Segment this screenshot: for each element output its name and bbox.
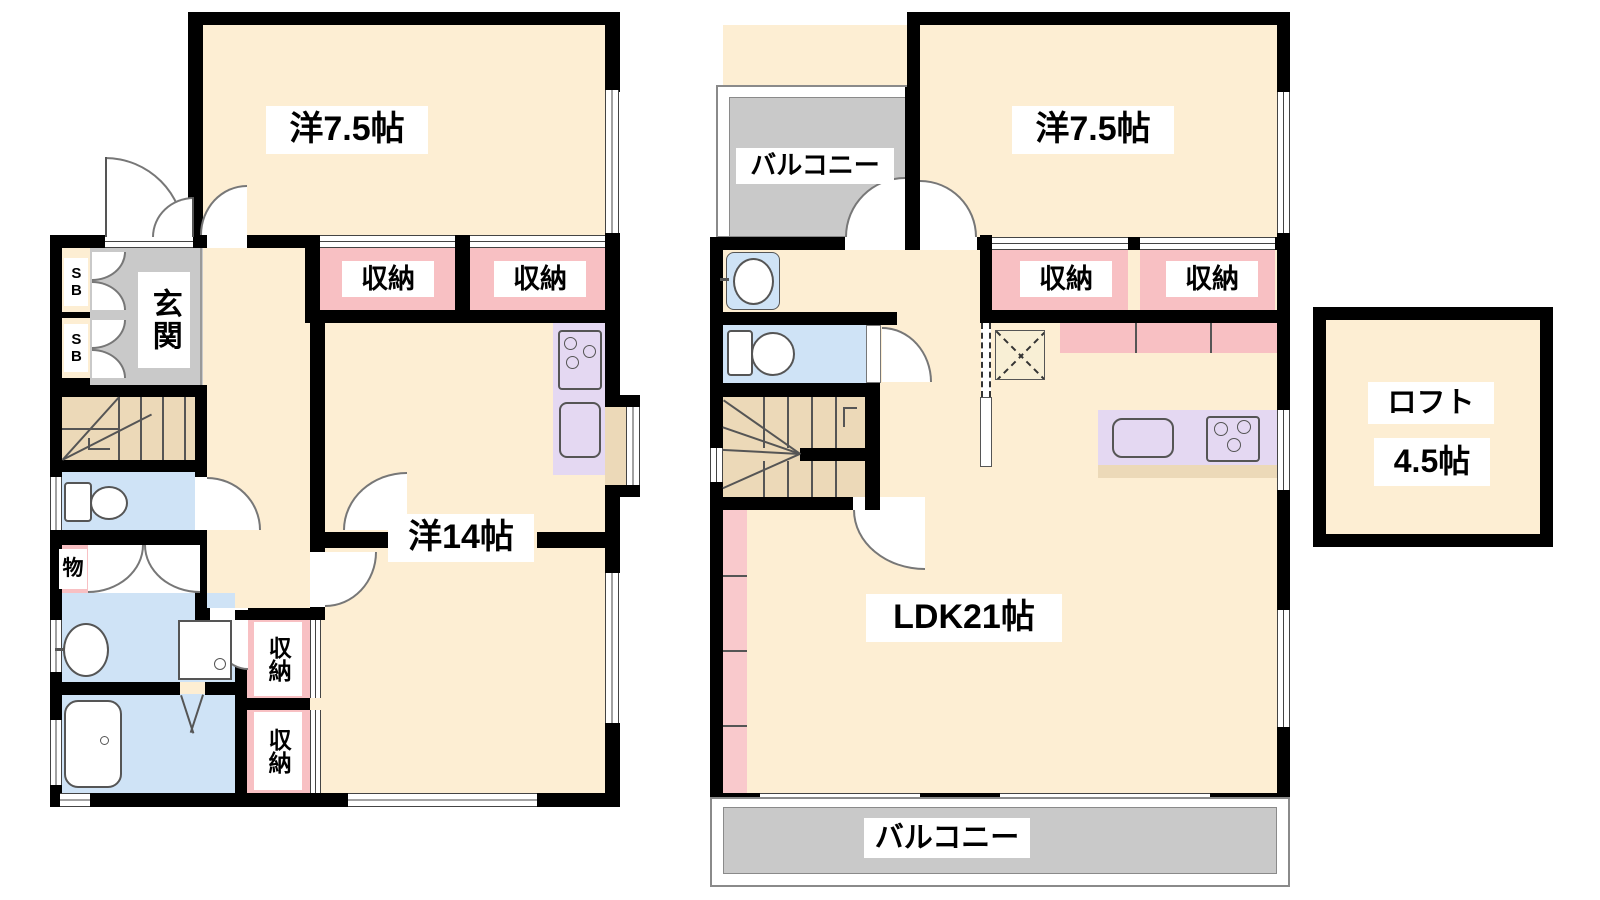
stair-tread <box>787 397 789 448</box>
wall <box>605 723 620 807</box>
window <box>710 448 723 482</box>
wall <box>188 12 620 25</box>
stair-tread <box>787 461 789 497</box>
storage-label: 収納 <box>254 622 302 696</box>
stair-tread <box>184 397 186 460</box>
wall <box>305 310 620 323</box>
wall <box>325 532 390 548</box>
wall <box>980 310 1290 323</box>
stove-burner <box>1214 422 1228 436</box>
window <box>626 407 640 485</box>
storage-label: 収納 <box>342 261 434 297</box>
wall <box>905 87 920 237</box>
washing-machine-1f <box>178 620 232 680</box>
storage-label: 収納 <box>1020 261 1112 297</box>
wall <box>605 497 620 573</box>
window <box>1277 410 1290 490</box>
floor-plan-canvas: 洋7.5帖 収納 収納 玄関 SB SB 物 洋14帖 収納 収納 <box>0 0 1600 900</box>
wall <box>50 793 60 807</box>
wall <box>247 698 310 710</box>
entrance-child-door-leaf <box>192 197 194 237</box>
wall <box>710 497 853 510</box>
window <box>1277 92 1290 233</box>
wall <box>195 608 210 620</box>
strip-divider <box>723 650 747 652</box>
kitchen-hatch-counter-2f <box>995 330 1045 380</box>
wall <box>50 460 207 472</box>
toilet-bowl-1f <box>90 486 128 520</box>
window <box>50 477 62 530</box>
wall <box>800 448 865 461</box>
sliding-door-storage-col-lower-1f <box>310 710 321 793</box>
closet-mono-label: 物 <box>59 549 87 589</box>
kitchen-cabinet-row-2f <box>1060 323 1277 353</box>
room-label-west-7-5-1f: 洋7.5帖 <box>266 106 428 154</box>
entrance-step-line <box>200 248 202 385</box>
stair-tread <box>811 461 813 497</box>
entrance-door-leaf <box>105 157 107 237</box>
toilet-door-leaf-2f <box>866 325 881 383</box>
washbasin-faucet-2f <box>720 278 729 281</box>
stair-tread <box>835 461 837 497</box>
wall <box>710 237 845 250</box>
wall <box>62 312 90 318</box>
toilet-tank-1f <box>64 482 92 522</box>
stair-rail-line <box>843 407 845 427</box>
wall <box>310 607 325 620</box>
wall <box>1277 250 1290 410</box>
ldk-label: LDK21帖 <box>866 594 1062 642</box>
storage-label: 収納 <box>494 261 586 297</box>
window <box>605 573 619 723</box>
kitchen-island-base-2f <box>1098 465 1278 478</box>
window <box>605 90 619 233</box>
window <box>1277 610 1290 727</box>
door-gap-balcony-2f <box>845 237 905 250</box>
bathtub-1f <box>64 700 122 788</box>
storage-label: 収納 <box>1166 261 1258 297</box>
kitchen-sink-2f <box>1112 418 1174 458</box>
wall <box>907 12 1290 25</box>
loft-label: ロフト <box>1368 382 1494 424</box>
kitchen-bay-1f <box>605 407 628 485</box>
wall <box>980 235 992 323</box>
strip-divider <box>723 575 747 577</box>
wall <box>62 530 207 545</box>
door-gap-ldk-2f <box>853 497 925 510</box>
wall <box>710 312 897 325</box>
balcony-top-label: バルコニー <box>736 148 894 184</box>
sliding-door-storage-right-2f <box>1140 237 1275 250</box>
stove-burner <box>1237 420 1251 434</box>
wall <box>62 378 90 388</box>
wall <box>1277 12 1290 92</box>
wall <box>710 237 723 448</box>
wall <box>537 532 605 548</box>
washbasin-1f <box>63 623 109 677</box>
stove-burner <box>1227 438 1241 452</box>
washbasin-bowl-2f <box>733 258 774 305</box>
wall <box>605 12 620 92</box>
wall <box>1275 237 1290 250</box>
wall <box>193 235 207 248</box>
entrance-label: 玄関 <box>138 272 190 368</box>
cabinet-divider <box>1135 323 1137 353</box>
window <box>348 793 537 807</box>
door-gap-room2-1f <box>310 552 325 607</box>
shoebox-label: SB <box>64 324 88 372</box>
ldk-west-closet-strip <box>723 508 747 802</box>
sliding-door-storage-col-upper-1f <box>310 620 321 698</box>
wall <box>865 397 880 510</box>
washbasin-faucet-1f <box>55 648 64 651</box>
stove-burner <box>566 356 579 369</box>
toilet-bowl-2f <box>751 332 795 376</box>
wall <box>247 610 310 620</box>
wall <box>310 323 325 552</box>
bathtub-drain-1f <box>100 736 109 745</box>
sliding-door-storage-left-2f <box>992 237 1128 250</box>
window <box>50 720 62 785</box>
balcony-bottom-label: バルコニー <box>864 818 1030 858</box>
wall <box>605 395 640 407</box>
door-gap-room1-1f <box>203 235 247 248</box>
stair-tread <box>763 461 765 497</box>
storage-label: 収納 <box>254 712 302 790</box>
wall <box>710 383 880 397</box>
strip-divider <box>723 725 747 727</box>
stair-arrow-line <box>88 438 90 449</box>
wall <box>50 672 62 720</box>
window <box>50 620 62 672</box>
wall <box>90 793 348 807</box>
wall <box>905 237 920 250</box>
stair-rail-line <box>843 407 857 409</box>
stove-burner <box>583 345 596 358</box>
window <box>60 793 90 807</box>
toilet-tank-2f <box>727 330 753 376</box>
cabinet-divider <box>1210 323 1212 353</box>
loft-size-label: 4.5帖 <box>1374 438 1490 486</box>
door-gap-toilet-1f <box>195 477 207 530</box>
sliding-door-storage-left-1f <box>320 235 455 248</box>
stair-tread <box>140 397 142 460</box>
sliding-door-storage-right-1f <box>470 235 605 248</box>
stair-arrow-line <box>88 448 110 450</box>
stove-burner <box>564 337 577 350</box>
wall <box>710 482 723 807</box>
room-label-west-7-5-2f: 洋7.5帖 <box>1012 106 1174 154</box>
wall <box>1277 490 1290 610</box>
stair-tread <box>162 397 164 460</box>
loft-room <box>1313 307 1553 547</box>
hanging-wall-dashed-2f <box>981 323 991 397</box>
room-label-west-14-1f: 洋14帖 <box>388 514 534 562</box>
wall <box>1128 237 1140 250</box>
half-wall-counter-2f <box>980 397 992 467</box>
wall <box>605 485 640 497</box>
wall <box>195 385 207 477</box>
wall <box>205 682 235 695</box>
wall <box>58 682 180 695</box>
shoebox-label: SB <box>64 258 88 306</box>
stair-tread <box>835 397 837 448</box>
wall <box>50 235 62 477</box>
kitchen-sink-1f <box>559 402 601 458</box>
stair-tread <box>811 397 813 448</box>
door-gap-room1-2f <box>920 237 977 250</box>
washing-machine-drain-1f <box>214 658 226 670</box>
